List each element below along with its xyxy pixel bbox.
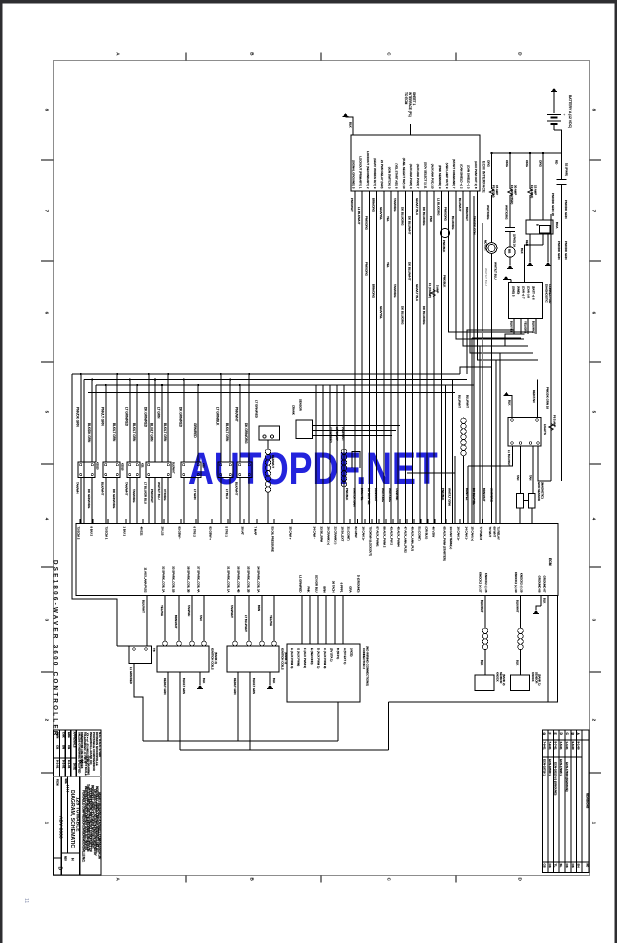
svg-text:LT BLU/OR BLU: LT BLU/OR BLU	[144, 482, 148, 504]
svg-text:YEL: YEL	[386, 216, 390, 222]
svg-text:PNK/BLK: PNK/BLK	[441, 488, 445, 500]
svg-text:BLK/LT GRN: BLK/LT GRN	[252, 678, 256, 694]
svg-text:51 (CONT): 51 (CONT)	[417, 527, 421, 541]
svg-text:53 OIL PRESSURE: 53 OIL PRESSURE	[270, 527, 274, 552]
svg-text:7: 7	[592, 210, 597, 213]
svg-text:K5020: K5020	[96, 462, 100, 470]
svg-text:125 TOWABLE: 125 TOWABLE	[74, 797, 80, 832]
svg-text:GRA/YEL: GRA/YEL	[379, 306, 383, 319]
svg-text:PNK/DK GRN: PNK/DK GRN	[557, 241, 561, 260]
svg-text:49 E21: 49 E21	[139, 527, 143, 537]
svg-text:DIAGRAM, SCHEMATIC: DIAGRAM, SCHEMATIC	[69, 790, 75, 848]
svg-text:ORG: ORG	[505, 160, 509, 168]
svg-text:LT GRN/RED: LT GRN/RED	[255, 400, 259, 419]
svg-text:ECN-17820 (REISSUE): ECN-17820 (REISSUE)	[565, 762, 569, 792]
svg-text:PNK/WHT: PNK/WHT	[350, 198, 354, 212]
svg-text:PNK/ORG: PNK/ORG	[364, 216, 368, 231]
svg-text:4: 4	[45, 518, 50, 521]
svg-text:BLK: BLK	[543, 598, 547, 603]
svg-text:9-1-01: 9-1-01	[56, 760, 60, 769]
svg-text:G (AUX PWM): G (AUX PWM)	[297, 648, 301, 666]
svg-text:TAN/PNK: TAN/PNK	[395, 488, 399, 500]
svg-text:WHT/DK GRN: WHT/DK GRN	[353, 488, 357, 507]
svg-text:BLK/LT GRN: BLK/LT GRN	[163, 423, 167, 442]
svg-text:PNK: PNK	[306, 587, 310, 593]
svg-text:SN: SN	[61, 745, 65, 749]
svg-text:ENG: ENG	[67, 732, 71, 738]
svg-text:39 IAT: 39 IAT	[240, 527, 244, 536]
svg-text:34 CAM -: 34 CAM -	[312, 527, 316, 539]
svg-text:LT GRN/BLK: LT GRN/BLK	[215, 407, 219, 426]
svg-text:(CAN +) 7: (CAN +) 7	[522, 286, 526, 299]
svg-text:15 CAN (+): 15 CAN (+)	[470, 527, 474, 542]
svg-text:BLK/WHT: BLK/WHT	[172, 462, 176, 474]
svg-text:5 TPS 1: 5 TPS 1	[224, 527, 228, 538]
svg-text:87 AUX_PWM1: 87 AUX_PWM1	[375, 527, 379, 547]
svg-text:F1 (15AMP): F1 (15AMP)	[428, 283, 432, 298]
svg-text:(CAN SHIELD +) 2: (CAN SHIELD +) 2	[459, 164, 463, 189]
svg-text:PNK/DK GRN: PNK/DK GRN	[564, 200, 568, 219]
svg-text:C (AUX PWM 9): C (AUX PWM 9)	[323, 648, 327, 668]
svg-text:(SIGNAL GROUND) 5: (SIGNAL GROUND) 5	[351, 160, 355, 189]
svg-text:19 5A_EXT: 19 5A_EXT	[340, 527, 344, 542]
svg-text:CS: CS	[565, 864, 569, 868]
svg-text:36 TACH: 36 TACH	[331, 581, 335, 593]
svg-text:IGNITION COILS: IGNITION COILS	[281, 648, 285, 670]
svg-text:DK GRN/RED: DK GRN/RED	[143, 407, 147, 428]
svg-text:YEL/WH: YEL/WH	[269, 615, 273, 626]
svg-text:PNK/WHT: PNK/WHT	[234, 407, 238, 422]
svg-text:BLU/WHT: BLU/WHT	[458, 395, 462, 408]
svg-text:DK BLU/ORG: DK BLU/ORG	[400, 207, 404, 226]
svg-text:D (GROUND): D (GROUND)	[356, 575, 360, 593]
svg-text:CONNECTOR 2: CONNECTOR 2	[362, 648, 366, 669]
svg-text:CHK: CHK	[61, 732, 65, 738]
svg-text:TL: TL	[553, 864, 557, 868]
svg-text:TAN: TAN	[199, 615, 203, 621]
svg-text:D: D	[56, 867, 62, 871]
svg-text:(IGN SWITCH) 3: (IGN SWITCH) 3	[387, 167, 391, 189]
svg-text:5: 5	[592, 411, 597, 414]
svg-text:DWN: DWN	[56, 732, 60, 738]
svg-text:PNK/BLK: PNK/BLK	[442, 240, 446, 252]
svg-text:BRN/WHT: BRN/WHT	[174, 615, 178, 629]
svg-text:8 B/U 2: 8 B/U 2	[89, 527, 93, 537]
svg-text:GRA/YEL: GRA/YEL	[379, 207, 383, 220]
svg-text:KNOCK2 (+) 27: KNOCK2 (+) 27	[478, 572, 482, 593]
svg-text:WHT/ORG: WHT/ORG	[381, 488, 385, 503]
svg-text:BATTERY A (12 VDC): BATTERY A (12 VDC)	[568, 95, 572, 128]
svg-text:BLK/WHT: BLK/WHT	[235, 482, 239, 496]
svg-text:L1 BLK/ORG: L1 BLK/ORG	[436, 198, 440, 216]
svg-text:7: 7	[45, 210, 50, 213]
svg-text:KNOCK2 (+) 30: KNOCK2 (+) 30	[514, 572, 518, 593]
svg-text:15 AMP: 15 AMP	[534, 185, 538, 195]
svg-text:GRA/LT BLU: GRA/LT BLU	[415, 198, 419, 215]
svg-text:LT GRN: LT GRN	[193, 489, 197, 500]
svg-text:TAN/ORG: TAN/ORG	[393, 198, 397, 212]
svg-text:DATE: DATE	[73, 763, 77, 770]
svg-text:38 SPARK_COIL 3B: 38 SPARK_COIL 3B	[186, 566, 190, 592]
svg-text:L1 GRN/RED: L1 GRN/RED	[129, 667, 133, 684]
svg-text:(AUX ANA PU22) 7: (AUX ANA PU22) 7	[416, 164, 420, 189]
svg-text:PNK/DK GRN: PNK/DK GRN	[75, 407, 79, 428]
svg-text:(BATT +) 6: (BATT +) 6	[532, 286, 536, 300]
svg-text:31 (CONT): 31 (CONT)	[346, 527, 350, 541]
svg-text:WHT/LT GRN: WHT/LT GRN	[448, 488, 452, 506]
svg-text:RED/TAN: RED/TAN	[532, 390, 536, 402]
svg-text:BLK: BLK	[516, 660, 520, 665]
svg-text:PNK/WHT: PNK/WHT	[150, 489, 154, 503]
svg-text:(MAGNETIC): (MAGNETIC)	[541, 482, 545, 499]
svg-text:DK BLU/ORG: DK BLU/ORG	[400, 306, 404, 325]
svg-text:ECM INTERFACE: ECM INTERFACE	[482, 161, 487, 193]
svg-text:1: 1	[592, 822, 597, 825]
svg-text:3: 3	[592, 619, 597, 622]
svg-text:76 WHT: 76 WHT	[488, 527, 492, 538]
svg-text:K50: K50	[202, 463, 206, 468]
svg-text:THIS DRAWING: THIS DRAWING	[87, 756, 91, 775]
svg-text:47 AUX_ANA_PU32: 47 AUX_ANA_PU32	[403, 527, 407, 554]
svg-text:BRN/YEL: BRN/YEL	[360, 488, 364, 501]
svg-text:34 SPARK_COIL 3A: 34 SPARK_COIL 3A	[256, 566, 260, 592]
svg-text:ECN-18540 1: ECN-18540 1	[548, 759, 552, 776]
svg-text:BLK: BLK	[349, 122, 353, 128]
svg-text:71 RELAY: 71 RELAY	[496, 527, 500, 540]
svg-text:TAN: TAN	[529, 475, 533, 480]
svg-text:4: 4	[592, 518, 597, 521]
svg-text:(BANK 2): (BANK 2)	[214, 652, 218, 664]
svg-text:2: 2	[45, 719, 50, 722]
svg-text:BLU/LT GRN: BLU/LT GRN	[150, 423, 154, 442]
svg-text:G: G	[542, 733, 546, 736]
svg-text:PNK/LT GRN: PNK/LT GRN	[100, 407, 104, 427]
svg-text:SL: SL	[559, 864, 563, 868]
svg-text:PNK/DK GRN 18: PNK/DK GRN 18	[546, 387, 550, 409]
svg-text:KNOCK2 (-) 29: KNOCK2 (-) 29	[519, 573, 523, 593]
svg-text:TB: TB	[152, 648, 156, 652]
svg-text:PNK/DK GRN: PNK/DK GRN	[564, 241, 568, 260]
svg-text:83 GBW -: 83 GBW -	[177, 527, 181, 540]
svg-text:11: 11	[23, 898, 29, 903]
svg-text:DK BLU/YEL: DK BLU/YEL	[367, 488, 371, 505]
svg-text:F (AUX PWM 3): F (AUX PWM 3)	[303, 648, 307, 668]
svg-text:AUTOPDF.NET: AUTOPDF.NET	[188, 443, 438, 494]
svg-text:BOA: BOA	[555, 222, 559, 228]
svg-text:DK GRN/RED: DK GRN/RED	[178, 407, 182, 428]
svg-text:YEL/GRN: YEL/GRN	[524, 321, 528, 333]
svg-text:ECM: ECM	[548, 558, 552, 566]
svg-text:LT GRN/RED: LT GRN/RED	[124, 407, 128, 427]
svg-text:DK BLU/ORG: DK BLU/ORG	[422, 306, 426, 325]
svg-text:29 L13: 29 L13	[160, 527, 164, 536]
svg-text:PNK/DK GRN 18: PNK/DK GRN 18	[551, 193, 555, 216]
svg-text:BLK/WHT: BLK/WHT	[142, 600, 146, 613]
svg-text:LOCKOUT (PRIMARY) 1: LOCKOUT (PRIMARY) 1	[359, 156, 363, 189]
svg-text:BLK/WHT: BLK/WHT	[101, 482, 105, 496]
svg-text:PNK: PNK	[429, 216, 433, 222]
svg-text:52 (PWR): 52 (PWR)	[565, 163, 569, 176]
svg-text:BLK/WHT: BLK/WHT	[516, 600, 520, 613]
svg-text:BLK/YEL: BLK/YEL	[510, 321, 514, 333]
svg-text:SIZE: SIZE	[64, 779, 66, 785]
svg-text:32 SPARK_COIL 2A: 32 SPARK_COIL 2A	[161, 566, 165, 592]
svg-text:LIGHTS: LIGHTS	[543, 424, 547, 435]
svg-text:7 MAP: 7 MAP	[253, 527, 257, 536]
svg-text:GROUND 67: GROUND 67	[543, 576, 547, 593]
svg-text:BLK/WHT: BLK/WHT	[480, 600, 484, 613]
svg-text:BRN: BRN	[322, 586, 326, 592]
svg-text:GRN/RED: GRN/RED	[193, 423, 197, 438]
svg-text:BLK: BLK	[520, 248, 524, 254]
svg-text:35 SPARK_COIL 2B: 35 SPARK_COIL 2B	[246, 566, 250, 592]
svg-text:82 GBW: 82 GBW	[354, 527, 358, 538]
svg-text:H (AUX PWM 4): H (AUX PWM 4)	[290, 648, 294, 668]
svg-text:BRN/ORG: BRN/ORG	[372, 284, 376, 299]
svg-text:ORG: ORG	[525, 160, 529, 168]
svg-text:4-5-01: 4-5-01	[559, 742, 563, 751]
svg-text:22 CRANK (-): 22 CRANK (-)	[333, 527, 337, 545]
svg-text:31 SPARK_COIL 1A: 31 SPARK_COIL 1A	[226, 566, 230, 592]
svg-text:75 DKWH (LOCKOUT): 75 DKWH (LOCKOUT)	[368, 527, 372, 557]
svg-text:NO: NO	[586, 864, 589, 868]
svg-text:37 SPARK_COIL 4A: 37 SPARK_COIL 4A	[196, 566, 200, 592]
svg-text:BRN/WHT: BRN/WHT	[482, 488, 486, 502]
svg-text:CS: CS	[571, 864, 575, 868]
svg-text:TAN/ORG: TAN/ORG	[393, 284, 397, 298]
svg-text:CB: CB	[56, 745, 60, 749]
svg-text:RED/WHT: RED/WHT	[271, 455, 275, 468]
svg-text:YEL: YEL	[386, 262, 390, 268]
svg-text:6: 6	[592, 312, 597, 315]
svg-text:(VICE): (VICE)	[349, 648, 353, 656]
svg-text:33 5K_RPM: 33 5K_RPM	[319, 527, 323, 543]
svg-text:15 AMP: 15 AMP	[495, 185, 499, 195]
svg-text:(AUX ANA PU20) 4: (AUX ANA PU20) 4	[409, 164, 413, 189]
svg-text:46 VSW: 46 VSW	[431, 527, 435, 538]
svg-text:SHEET 1: SHEET 1	[412, 92, 416, 105]
svg-text:L1 BLK/WHT: L1 BLK/WHT	[357, 207, 361, 225]
svg-text:A (5V EXT 1): A (5V EXT 1)	[343, 648, 347, 664]
svg-text:82 GBW +: 82 GBW +	[208, 527, 212, 541]
svg-text:(LPAS) 1A: (LPAS) 1A	[513, 234, 517, 247]
svg-text:9-8-00: 9-8-00	[571, 742, 575, 751]
svg-text:6 TPS 2: 6 TPS 2	[192, 527, 196, 538]
svg-text:TAN/ORG: TAN/ORG	[132, 489, 136, 503]
svg-text:MOTOR: MOTOR	[484, 240, 488, 250]
svg-text:PNK/ORG: PNK/ORG	[444, 207, 448, 222]
svg-text:DK GRN/ORG: DK GRN/ORG	[87, 489, 91, 509]
svg-text:43 AUX_PW 2: 43 AUX_PW 2	[389, 527, 393, 546]
svg-text:CS: CS	[542, 864, 546, 868]
svg-text:ECN-17995 1: ECN-17995 1	[559, 759, 563, 776]
svg-text:K51: K51	[141, 463, 145, 468]
svg-text:F5 (ECM): F5 (ECM)	[492, 185, 496, 198]
svg-text:DK BLU/WHT: DK BLU/WHT	[408, 216, 412, 235]
svg-text:WHT/LT BLU: WHT/LT BLU	[494, 262, 498, 280]
svg-text:DIAGNOSTIC: DIAGNOSTIC	[545, 284, 549, 304]
svg-text:16 CAN 1+: 16 CAN 1+	[361, 527, 365, 542]
svg-text:SCV/OR BLU: SCV/OR BLU	[314, 575, 318, 593]
svg-text:(PNK SENSOR) 3: (PNK SENSOR) 3	[438, 165, 442, 189]
svg-text:BLK/LT GRN: BLK/LT GRN	[182, 678, 186, 694]
svg-text:14 CAN 1-: 14 CAN 1-	[464, 527, 468, 541]
svg-text:8: 8	[45, 109, 50, 112]
svg-text:(AUX PWM OUT 1) 8: (AUX PWM OUT 1) 8	[474, 161, 478, 189]
svg-text:CS: CS	[548, 864, 552, 868]
svg-text:(5V STA 1): (5V STA 1)	[330, 648, 334, 662]
svg-text:60 WHT: 60 WHT	[492, 527, 496, 538]
svg-text:TAN/WHT: TAN/WHT	[125, 482, 129, 496]
svg-text:(OR BLU): (OR BLU)	[424, 527, 428, 540]
svg-text:F: F	[548, 733, 552, 735]
svg-text:LOCKOUT (SECONDARY) 2: LOCKOUT (SECONDARY) 2	[366, 151, 370, 189]
svg-text:L1 BLU/WHT: L1 BLU/WHT	[507, 450, 511, 467]
svg-text:WHT/ORG: WHT/ORG	[505, 205, 509, 220]
svg-text:BRN/ORG: BRN/ORG	[372, 198, 376, 213]
svg-text:DK GRN/ORG: DK GRN/ORG	[112, 489, 116, 509]
svg-text:(NMD): (NMD)	[517, 286, 521, 294]
svg-text:TAN/WH: TAN/WH	[76, 482, 80, 494]
svg-text:BLK: BLK	[202, 678, 206, 683]
svg-text:7-9-01: 7-9-01	[542, 742, 546, 751]
svg-text:BLU/WHT: BLU/WHT	[466, 395, 470, 408]
svg-text:PNK/ORG: PNK/ORG	[364, 262, 368, 277]
svg-text:REV: REV	[64, 856, 66, 861]
svg-text:36 SPARK_COIL 4B: 36 SPARK_COIL 4B	[236, 566, 240, 592]
svg-text:(GND) 5: (GND) 5	[512, 286, 516, 297]
svg-text:49 AUX_ANA_PU1: 49 AUX_ANA_PU1	[410, 527, 414, 552]
svg-text:3: 3	[45, 619, 50, 622]
svg-text:9-1-01: 9-1-01	[67, 760, 71, 769]
svg-text:SH: SH	[576, 864, 580, 868]
svg-text:DSE1806-WAVER 3600 CONTROLLER: DSE1806-WAVER 3600 CONTROLLER	[52, 560, 59, 738]
svg-text:/ / / /: / / / /	[66, 785, 70, 792]
svg-text:RED/LT GRN: RED/LT GRN	[233, 678, 237, 695]
svg-text:GRA/LT BLU: GRA/LT BLU	[415, 284, 419, 301]
svg-text:VT/ORG: VT/ORG	[163, 489, 167, 501]
svg-text:RIGHTS RESERVED PORTABLE COMPR: RIGHTS RESERVED PORTABLE COMPRESSOR DIV	[97, 792, 101, 860]
svg-text:ECN-18213 (-) (GROUND): ECN-18213 (-) (GROUND)	[553, 762, 557, 795]
svg-text:35 CAM +: 35 CAM +	[288, 527, 292, 540]
svg-text:BLK: BLK	[272, 678, 276, 683]
svg-text:73 ECM 2: 73 ECM 2	[76, 527, 80, 540]
svg-text:BRN/WHT: BRN/WHT	[374, 488, 378, 502]
svg-text:13 CAN TERM(+): 13 CAN TERM(+)	[449, 527, 453, 550]
svg-text:1-4-01: 1-4-01	[565, 742, 569, 751]
svg-text:L1 GRN/RED: L1 GRN/RED	[298, 575, 302, 592]
svg-text:65 AUX_PWM (STARTER): 65 AUX_PWM (STARTER)	[442, 527, 446, 561]
svg-text:5-7-01: 5-7-01	[553, 742, 557, 751]
svg-text:LT GRN: LT GRN	[157, 407, 161, 419]
svg-text:LT BLU: LT BLU	[225, 489, 229, 499]
svg-text:BLK: BLK	[480, 660, 484, 665]
svg-text:8-1-00: 8-1-00	[576, 742, 580, 751]
svg-text:7-9-01: 7-9-01	[548, 742, 552, 751]
svg-text:33 SPARK_COIL 1B: 33 SPARK_COIL 1B	[171, 566, 175, 592]
svg-text:(BANK 2): (BANK 2)	[502, 674, 506, 685]
svg-text:B: B	[536, 224, 540, 226]
svg-text:ORG: ORG	[539, 160, 543, 168]
svg-text:DK GRN/ORG: DK GRN/ORG	[244, 423, 248, 444]
svg-text:ECN-18719 1: ECN-18719 1	[542, 759, 546, 776]
svg-text:TO ECM: TO ECM	[404, 92, 408, 105]
svg-text:6 PPP1: 6 PPP1	[339, 583, 343, 593]
svg-text:1 B/U 1: 1 B/U 1	[122, 527, 126, 537]
svg-text:INTERFACE (P1): INTERFACE (P1)	[408, 92, 412, 117]
svg-text:WHT/LT BLU: WHT/LT BLU	[484, 268, 488, 286]
svg-text:22 PWR RELAY (IGN): 22 PWR RELAY (IGN)	[380, 160, 384, 189]
svg-text:9-1-01: 9-1-01	[61, 760, 65, 769]
svg-text:ADV-8636: ADV-8636	[57, 816, 63, 839]
svg-text:CB: CB	[67, 745, 71, 749]
svg-text:CRANK: CRANK	[292, 405, 296, 415]
svg-text:APPROVALS: APPROVALS	[73, 732, 77, 748]
svg-text:GOR SENSOR: GOR SENSOR	[537, 482, 541, 501]
svg-text:73 ECM 1: 73 ECM 1	[104, 527, 108, 540]
svg-text:DK BLU/ORG: DK BLU/ORG	[422, 207, 426, 226]
svg-text:5: 5	[45, 411, 50, 414]
svg-text:88 AUX_PWM 2: 88 AUX_PWM 2	[382, 527, 386, 548]
svg-text:TAN/WH: TAN/WH	[187, 605, 191, 616]
svg-text:30 AMP: 30 AMP	[514, 185, 518, 195]
svg-text:TAN: TAN	[516, 475, 520, 480]
svg-text:1: 1	[45, 822, 50, 825]
svg-text:KNOCK2 (-) 26: KNOCK2 (-) 26	[484, 573, 488, 593]
svg-text:(NO WIRING CONNECTIONS): (NO WIRING CONNECTIONS)	[366, 646, 370, 686]
svg-text:E (SECOND): E (SECOND)	[310, 648, 314, 665]
svg-text:8: 8	[592, 109, 597, 112]
svg-text:BLK/LT GRN: BLK/LT GRN	[112, 423, 116, 442]
svg-text:BRN: BRN	[257, 605, 261, 611]
svg-text:WHT/ORG: WHT/ORG	[490, 488, 494, 503]
svg-text:11 AUX_ANA PU22: 11 AUX_ANA PU22	[143, 567, 147, 592]
svg-text:BLK: BLK	[508, 400, 512, 406]
svg-text:F6 5 AMP: F6 5 AMP	[553, 415, 557, 427]
svg-text:77 PWM 8: 77 PWM 8	[479, 527, 483, 541]
svg-text:RED/LT GRN: RED/LT GRN	[163, 678, 167, 695]
svg-text:LT BLU/WHT: LT BLU/WHT	[244, 615, 248, 632]
svg-text:H: H	[71, 858, 75, 861]
svg-text:BLK/LT GRN: BLK/LT GRN	[132, 423, 136, 442]
svg-text:BLK/DK GRN: BLK/DK GRN	[87, 423, 91, 443]
svg-text:(CAN -) 8: (CAN -) 8	[527, 286, 531, 298]
svg-text:IGNITION COILS: IGNITION COILS	[211, 648, 215, 670]
svg-text:6: 6	[45, 312, 50, 315]
svg-text:N.C. U.S.A. 27028: N.C. U.S.A. 27028	[98, 732, 102, 757]
svg-text:K5019: K5019	[121, 463, 125, 471]
svg-text:SENSOR: SENSOR	[299, 399, 303, 411]
svg-text:YEL/WH: YEL/WH	[160, 605, 164, 616]
svg-text:FSCM: FSCM	[56, 779, 58, 786]
svg-text:GRA: GRA	[348, 586, 352, 592]
svg-text:(GOV SELECT 1) 11: (GOV SELECT 1) 11	[423, 162, 427, 189]
svg-text:(YEL START AID) 6: (YEL START AID) 6	[395, 163, 399, 189]
svg-text:PNK/BLK: PNK/BLK	[443, 275, 447, 287]
svg-text:(AUX ANA PU1) 10: (AUX ANA PU1) 10	[431, 164, 435, 189]
svg-text:WHT/ORG: WHT/ORG	[486, 205, 490, 220]
svg-text:GROUND 66: GROUND 66	[538, 576, 542, 593]
svg-text:5 AMP: 5 AMP	[436, 285, 440, 293]
svg-text:PNK/BLK: PNK/BLK	[345, 488, 349, 500]
svg-text:D (AUX PWM 1): D (AUX PWM 1)	[316, 648, 320, 668]
svg-text:16 CAN 1+: 16 CAN 1+	[456, 527, 460, 542]
svg-text:(FUEL SELECT SW) 10: (FUEL SELECT SW) 10	[402, 158, 406, 189]
svg-text:WHT/LT BLU: WHT/LT BLU	[157, 482, 161, 500]
svg-text:(START COMMAND) 7: (START COMMAND) 7	[452, 159, 456, 189]
svg-text:(GRAY WORKS RLY) 9: (GRAY WORKS RLY) 9	[373, 158, 377, 189]
svg-text:(VER LAMP OUT) 9: (VER LAMP OUT) 9	[445, 163, 449, 189]
